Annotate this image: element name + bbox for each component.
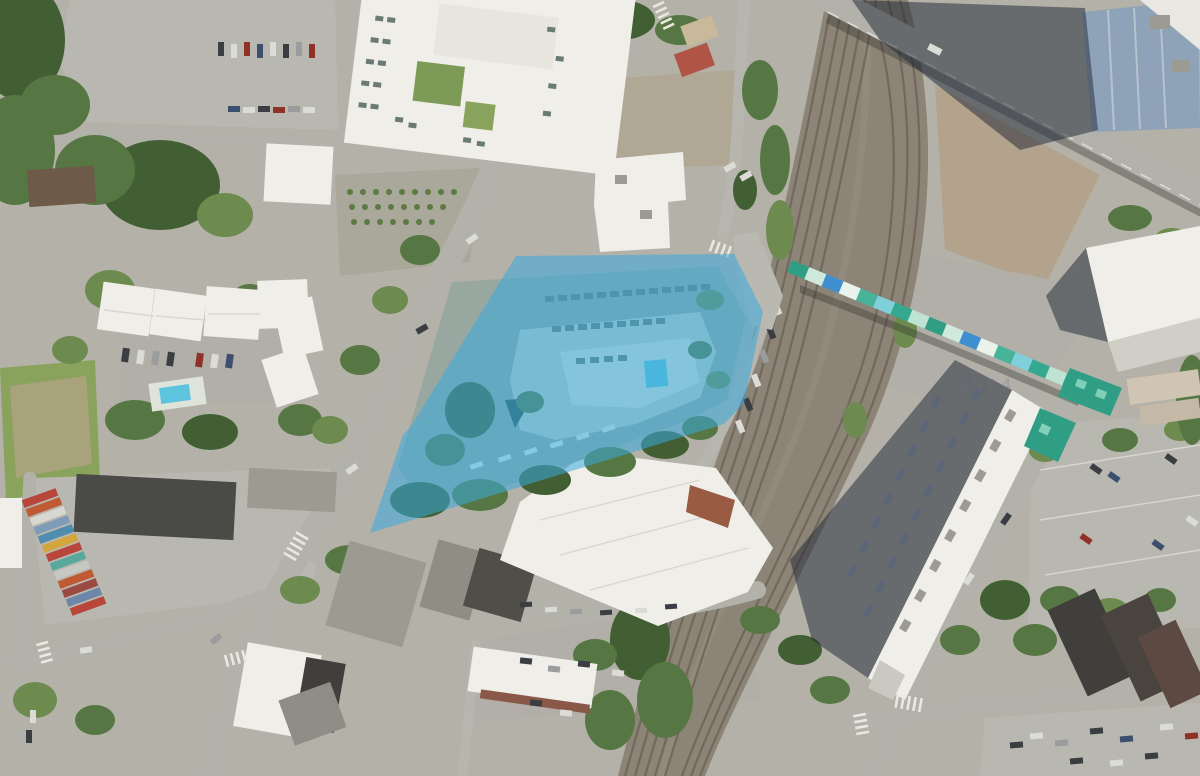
- imagery-watermark: 2024: [958, 375, 1016, 394]
- aerial-map-canvas: 2024: [0, 0, 1200, 776]
- glass-office-tower: [1082, 0, 1200, 132]
- brown-roof-house: [27, 166, 96, 208]
- aerial-map-figure: 2024: [0, 0, 1200, 776]
- office-building-small: [264, 143, 334, 204]
